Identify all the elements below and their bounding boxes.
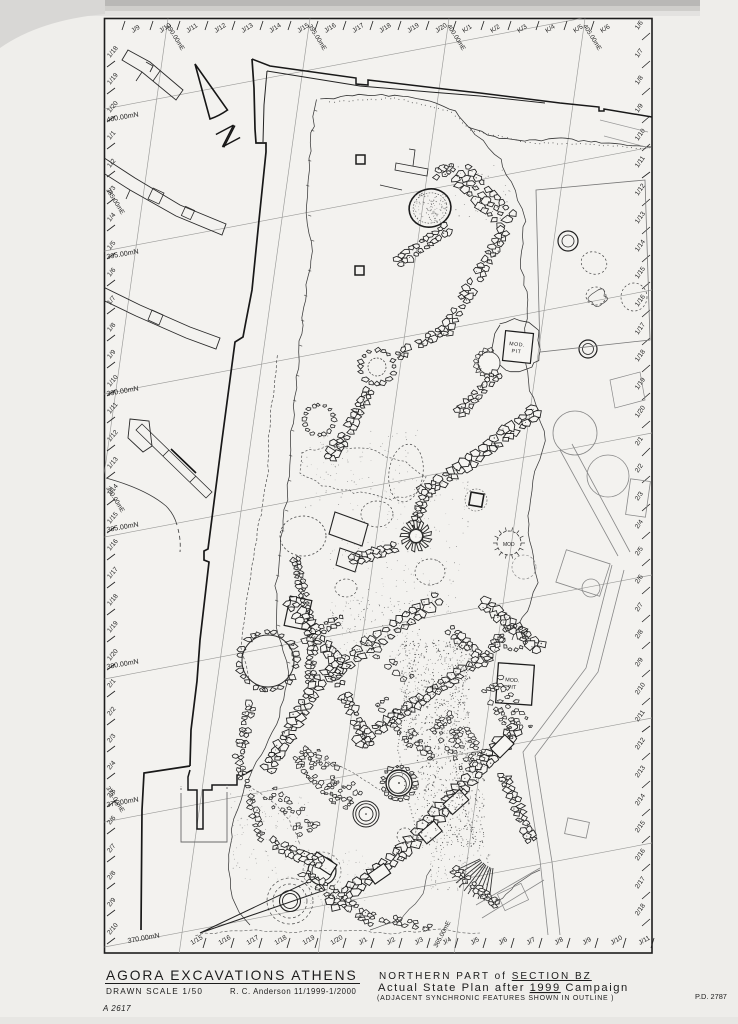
svg-text:AGORA EXCAVATIONS ATHENS: AGORA EXCAVATIONS ATHENS <box>106 968 358 983</box>
svg-text:DRAWN SCALE 1/50: DRAWN SCALE 1/50 <box>106 987 203 996</box>
svg-text:A 2617: A 2617 <box>102 1004 131 1013</box>
svg-text:PIT: PIT <box>511 348 522 355</box>
svg-text:NORTHERN PART of SECTION BZ: NORTHERN PART of SECTION BZ <box>379 971 592 982</box>
svg-text:MOD: MOD <box>503 542 515 548</box>
svg-text:(ADJACENT SYNCHRONIC FEATURES: (ADJACENT SYNCHRONIC FEATURES SHOWN IN O… <box>377 995 614 1002</box>
svg-text:MOD.: MOD. <box>505 677 519 684</box>
svg-text:Actual State Plan after 1999 C: Actual State Plan after 1999 Campaign <box>378 982 629 994</box>
svg-text:R. C. Anderson 11/1999-1/2000: R. C. Anderson 11/1999-1/2000 <box>230 987 357 996</box>
svg-text:P.D. 2787: P.D. 2787 <box>695 992 727 1001</box>
